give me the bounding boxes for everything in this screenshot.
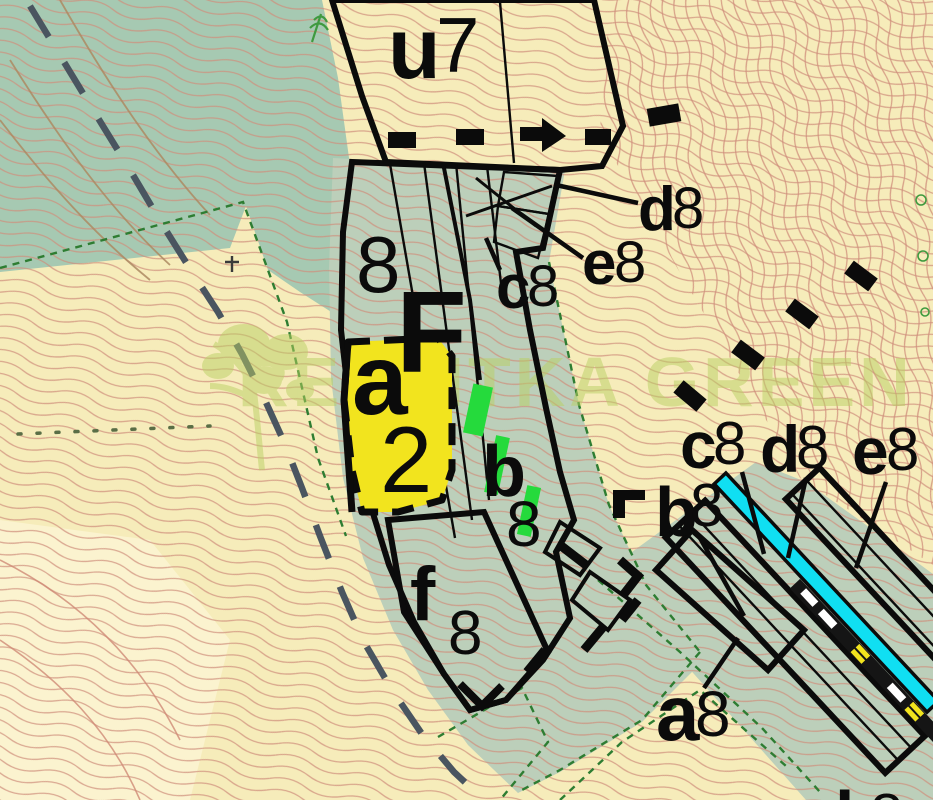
label-f8-letter: f xyxy=(410,552,436,637)
label-e8top-letter: e xyxy=(582,229,616,298)
cadastral-map: REALITKA GREEN xyxy=(0,0,933,800)
label-a8-letter: a xyxy=(656,669,700,757)
label-d8right-letter: d xyxy=(760,412,800,486)
label-d8top-num: 8 xyxy=(672,176,704,241)
label-e8right-num: 8 xyxy=(886,416,919,483)
watermark-text: REALITKA GREEN xyxy=(238,343,914,421)
label-c8right-num: 8 xyxy=(713,410,746,477)
label-d8top-letter: d xyxy=(638,175,676,244)
label-c8top-letter: c xyxy=(496,253,530,322)
label-e8right-letter: e xyxy=(852,414,889,488)
label-a8-num: 8 xyxy=(695,678,731,750)
label-u7-letter: u xyxy=(388,1,441,97)
label-b8bottom-num: 8 xyxy=(870,782,903,800)
label-c8top-num: 8 xyxy=(527,254,559,319)
label-plot2: 2 xyxy=(380,407,432,512)
map-canvas: REALITKA GREEN xyxy=(0,0,933,800)
label-area8: 8 xyxy=(356,220,401,309)
label-u7-num: 7 xyxy=(436,1,479,89)
label-b8right-num: 8 xyxy=(690,472,723,539)
label-f8-num: 8 xyxy=(448,599,482,668)
label-c8right-letter: c xyxy=(680,408,717,482)
label-b8mid-num: 8 xyxy=(506,488,542,560)
label-d8right-num: 8 xyxy=(796,414,829,481)
